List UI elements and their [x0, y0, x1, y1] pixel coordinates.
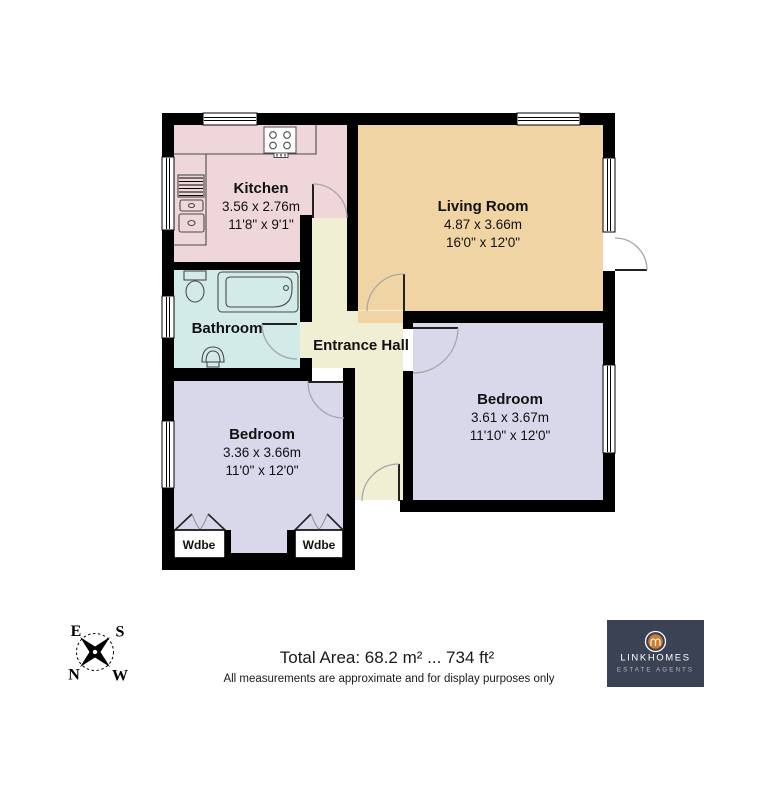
bedroom-left-recess: [231, 530, 287, 553]
bedroom-left-dim-imperial: 11'0" x 12'0": [225, 463, 298, 478]
living-room-dim-imperial: 16'0" x 12'0": [446, 235, 520, 250]
bedroom-left-label: Bedroom: [229, 426, 295, 443]
compass-west: W: [112, 668, 128, 685]
window-icon: [162, 296, 174, 338]
window-icon: [603, 365, 615, 453]
living-room-dim-metric: 4.87 x 3.66m: [444, 217, 522, 232]
wardrobe-right-label: Wdbe: [303, 538, 336, 552]
disclaimer-text: All measurements are approximate and for…: [223, 673, 554, 685]
compass-north: N: [68, 667, 80, 684]
patio-door-icon: [615, 238, 647, 270]
kitchen-dim-metric: 3.56 x 2.76m: [222, 199, 300, 214]
floorplan-page: Wdbe Wdbe: [0, 0, 768, 806]
kitchen-label: Kitchen: [233, 180, 288, 197]
total-area-text: Total Area: 68.2 m² ... 734 ft²: [280, 648, 495, 667]
logo-house-icon: [646, 632, 666, 652]
window-icon: [162, 157, 174, 230]
window-icon: [603, 158, 615, 232]
stove-icon: [264, 127, 296, 158]
hall-strip-floor: [306, 218, 352, 310]
living-threshold: [358, 311, 403, 323]
bedroom-right-dim-metric: 3.61 x 3.67m: [471, 410, 549, 425]
agency-logo: LINKHOMES ESTATE AGENTS: [607, 620, 704, 687]
kitchen-dim-imperial: 11'8" x 9'1": [228, 217, 294, 232]
wardrobe-left-label: Wdbe: [183, 538, 216, 552]
compass-south: S: [116, 624, 125, 641]
compass-rose: E S N W: [68, 623, 128, 685]
bedroom-right-dim-imperial: 11'10" x 12'0": [470, 428, 551, 443]
logo-brand-text: LINKHOMES: [620, 653, 690, 664]
footer: Total Area: 68.2 m² ... 734 ft² All meas…: [223, 648, 554, 685]
bedroom-right-label: Bedroom: [477, 391, 543, 408]
compass-east: E: [71, 623, 82, 640]
window-icon: [162, 421, 174, 488]
logo-tagline-text: ESTATE AGENTS: [617, 667, 694, 674]
bathroom-label: Bathroom: [192, 320, 263, 337]
entrance-hall-label: Entrance Hall: [313, 337, 409, 354]
window-icon: [517, 113, 580, 125]
bedroom-left-dim-metric: 3.36 x 3.66m: [223, 445, 301, 460]
window-icon: [203, 113, 257, 125]
bathroom-floor: [174, 270, 300, 368]
living-room-label: Living Room: [438, 198, 529, 215]
